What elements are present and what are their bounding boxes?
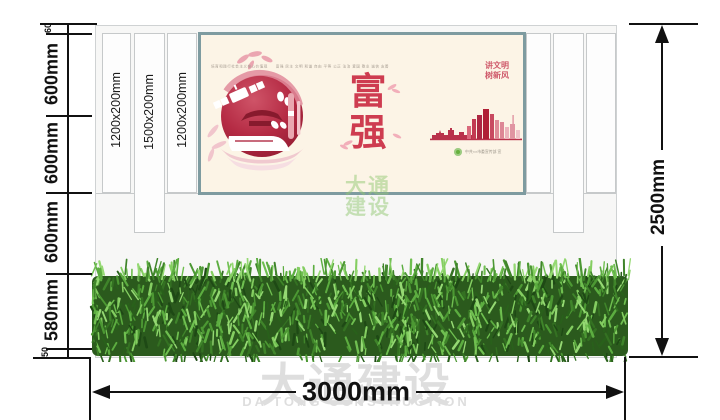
poster-main-slogan: 富 强: [348, 72, 388, 154]
publisher-seal-icon: [454, 148, 462, 156]
poster-right-slogan: 讲文明 树新风: [485, 61, 509, 81]
stamp-watermark: 大通 建设: [344, 176, 392, 218]
panel-size-label-2: 1500x200mm: [142, 74, 156, 150]
dim-tick-bottom: [33, 357, 91, 359]
main-slogan-char-2: 强: [348, 113, 388, 154]
dim-tick-right-bottom: [629, 356, 698, 358]
dim-line-bottom-right-seg: [416, 391, 608, 393]
poster-right-slogan-line2: 树新风: [485, 71, 509, 81]
drawing-canvas: 1200x200mm 1500x200mm 1200x200mm: [0, 0, 720, 420]
arrow-right-icon: [606, 385, 624, 399]
main-slogan-char-1: 富: [348, 72, 388, 113]
poster-heading-small: 培育和践行社会主义核心价值观 富强 民主 文明 和谐 自由 平等 公正 法治 爱…: [211, 64, 400, 69]
dim-tick-5: [46, 273, 92, 275]
arrow-left-icon: [92, 385, 110, 399]
dim-tick-6: [46, 348, 92, 350]
publisher-text: 中共××市委宣传部 宣: [465, 149, 501, 155]
arrow-down-icon: [655, 338, 669, 356]
poster-board: 培育和践行社会主义核心价值观 富强 民主 文明 和谐 自由 平等 公正 法治 爱…: [198, 32, 526, 195]
dim-label-600-3: 600mm: [42, 201, 63, 263]
arrow-up-icon: [655, 25, 669, 43]
panel-slat-right-2: [553, 33, 584, 233]
dim-tick-4: [46, 192, 92, 194]
poster-right-slogan-line1: 讲文明: [485, 61, 509, 71]
panel-slat-right-1: [526, 33, 551, 193]
city-skyline-graphic: [430, 109, 522, 140]
dim-label-2500: 2500mm: [648, 159, 670, 235]
dim-label-580: 580mm: [42, 279, 63, 341]
extension-line-left: [89, 358, 91, 420]
stamp-watermark-row2: 建设: [344, 197, 392, 218]
dim-label-600-2: 600mm: [42, 122, 63, 184]
panel-size-label-3: 1200x200mm: [175, 72, 189, 148]
dim-tick-3: [46, 115, 92, 117]
dim-tick-2: [46, 33, 92, 35]
dim-label-50: 50: [40, 347, 50, 357]
panel-size-label-1: 1200x200mm: [109, 72, 123, 148]
stamp-watermark-row1: 大通: [344, 176, 392, 197]
dim-line-right-upper: [661, 38, 663, 150]
dim-line-bottom-left-seg: [104, 391, 296, 393]
hedge-plants: [88, 258, 632, 362]
dimension-line-left: [67, 23, 69, 358]
extension-line-right: [624, 357, 626, 420]
dim-line-right-lower: [661, 246, 663, 344]
dim-label-600-1: 600mm: [42, 43, 63, 105]
dim-label-3000: 3000mm: [302, 377, 410, 408]
panel-slat-right-3: [586, 33, 616, 193]
dim-label-60: 60: [43, 23, 53, 33]
poster-content: 培育和践行社会主义核心价值观 富强 民主 文明 和谐 自由 平等 公正 法治 爱…: [201, 35, 523, 192]
